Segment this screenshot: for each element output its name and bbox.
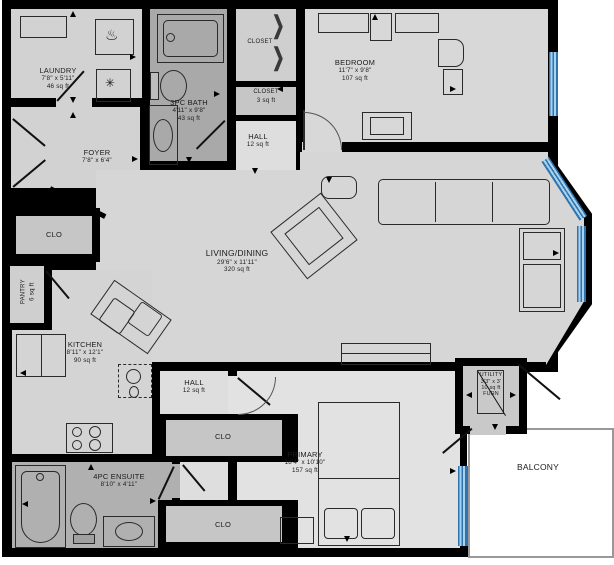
toilet-tank xyxy=(73,534,95,544)
dishwasher-dial xyxy=(129,386,139,398)
washer-icon: ✳ xyxy=(105,76,115,90)
room-balcony xyxy=(468,428,614,558)
direction-arrow xyxy=(186,157,192,163)
direction-arrow xyxy=(22,501,28,507)
tv-cabinet-shelf xyxy=(523,264,561,308)
direction-arrow xyxy=(70,97,76,103)
direction-arrow xyxy=(252,168,258,174)
room-clo-mid xyxy=(166,420,282,456)
direction-arrow xyxy=(88,464,94,470)
toilet-bowl xyxy=(70,503,97,536)
room-pantry xyxy=(10,266,44,323)
closet-chevron-icon: ❯ xyxy=(272,43,285,72)
window-bay-right xyxy=(577,226,586,302)
dresser xyxy=(395,13,439,33)
bathtub-basin xyxy=(21,471,60,543)
room-clo-left xyxy=(16,216,92,254)
dishwasher-dial xyxy=(126,369,141,384)
sofa xyxy=(378,179,550,225)
pillow xyxy=(324,508,358,539)
room-closet-top xyxy=(236,9,296,81)
direction-arrow xyxy=(130,54,136,60)
closet-chevron-icon: ❯ xyxy=(272,11,285,40)
stove-burner xyxy=(72,440,82,450)
direction-arrow xyxy=(492,424,498,430)
room-hall-upper xyxy=(236,121,296,172)
direction-arrow xyxy=(450,86,456,92)
direction-arrow xyxy=(326,177,332,183)
direction-arrow xyxy=(132,156,138,162)
ensuite-sink xyxy=(115,522,143,541)
room-clo-bottom xyxy=(166,506,282,542)
direction-arrow xyxy=(450,468,456,474)
window-bedroom xyxy=(549,52,558,116)
nightstand xyxy=(280,517,314,544)
direction-arrow xyxy=(277,86,283,92)
direction-arrow xyxy=(20,370,26,376)
stove-burner xyxy=(89,439,101,451)
dining-bench-rail xyxy=(341,353,431,354)
dining-bench xyxy=(341,343,431,365)
stove-burner xyxy=(89,426,101,438)
direction-arrow xyxy=(214,91,220,97)
direction-arrow xyxy=(466,392,472,398)
direction-arrow xyxy=(70,11,76,17)
room-closet-small xyxy=(236,87,296,115)
direction-arrow xyxy=(344,536,350,542)
bedroom-bench-inner xyxy=(370,117,404,135)
bath-sink xyxy=(153,119,173,152)
window-primary-balcony-door xyxy=(458,466,468,546)
dresser xyxy=(318,13,369,33)
laundry-counter xyxy=(20,16,67,38)
sofa-cushion-line xyxy=(492,182,493,222)
floor-plan: ❯ ❯ ♨ ✳ xyxy=(0,0,614,565)
direction-arrow xyxy=(553,250,559,256)
toilet-bowl xyxy=(160,70,187,102)
pillow xyxy=(361,508,395,539)
direction-arrow xyxy=(510,392,516,398)
shower-head-icon xyxy=(166,33,175,42)
door-gap xyxy=(470,426,506,435)
door-gap xyxy=(228,376,237,416)
dryer-icon: ♨ xyxy=(105,26,118,44)
fridge-door-line xyxy=(41,334,42,377)
direction-arrow xyxy=(70,112,76,118)
chair xyxy=(438,39,464,67)
direction-arrow xyxy=(150,498,156,504)
direction-arrow xyxy=(372,14,378,20)
bed-blanket-line xyxy=(319,478,399,479)
stove-burner xyxy=(72,427,82,437)
toilet-tank xyxy=(150,72,159,100)
sofa-cushion-line xyxy=(435,182,436,222)
tub-faucet-icon xyxy=(36,473,44,481)
